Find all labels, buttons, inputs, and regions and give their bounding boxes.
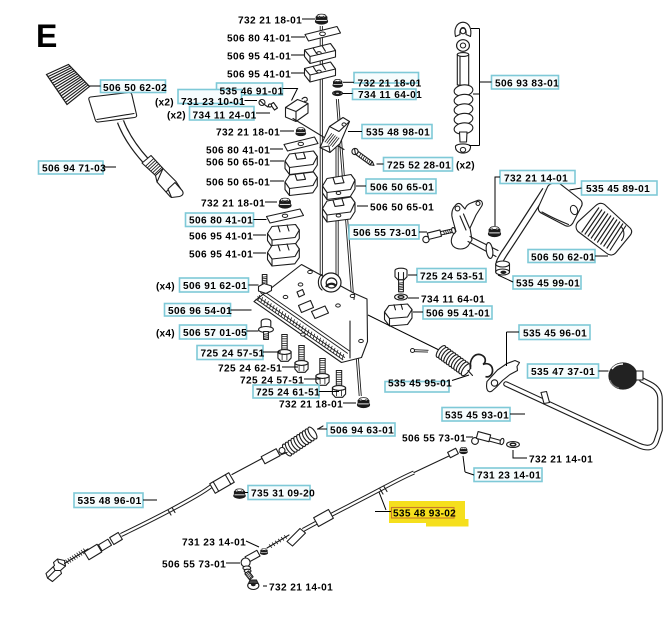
svg-text:506 50 65-01: 506 50 65-01 [206, 178, 270, 189]
svg-text:535 46 91-01: 535 46 91-01 [220, 87, 284, 98]
svg-text:725 24 57-51: 725 24 57-51 [201, 349, 265, 360]
svg-text:(x2): (x2) [167, 111, 186, 122]
svg-text:506 91 62-01: 506 91 62-01 [183, 281, 247, 292]
svg-text:506 80 41-01: 506 80 41-01 [227, 34, 291, 45]
svg-text:734 11 24-01: 734 11 24-01 [193, 111, 257, 122]
svg-text:506 55 73-01: 506 55 73-01 [402, 434, 466, 445]
svg-text:725 24 57-51: 725 24 57-51 [240, 376, 304, 387]
svg-text:506 50 65-01: 506 50 65-01 [370, 203, 434, 214]
svg-text:535 48 96-01: 535 48 96-01 [78, 496, 142, 507]
svg-text:734 11 64-01: 734 11 64-01 [421, 295, 485, 306]
svg-text:506 95 41-01: 506 95 41-01 [426, 309, 490, 320]
svg-text:506 57 01-05: 506 57 01-05 [183, 328, 247, 339]
svg-text:535 47 37-01: 535 47 37-01 [531, 367, 595, 378]
svg-text:506 80 41-01: 506 80 41-01 [189, 216, 253, 227]
svg-text:732 21 18-01: 732 21 18-01 [238, 16, 302, 27]
svg-text:535 45 99-01: 535 45 99-01 [516, 279, 580, 290]
svg-text:725 24 61-51: 725 24 61-51 [256, 388, 320, 399]
svg-text:725 24 62-51: 725 24 62-51 [218, 364, 282, 375]
svg-text:506 55 73-01: 506 55 73-01 [162, 560, 226, 571]
svg-text:735 31 09-20: 735 31 09-20 [251, 489, 315, 500]
svg-text:732 21 14-01: 732 21 14-01 [504, 174, 568, 185]
svg-text:(x2): (x2) [155, 98, 174, 109]
svg-text:732 21 18-01: 732 21 18-01 [279, 400, 343, 411]
svg-text:732 21 18-01: 732 21 18-01 [358, 79, 422, 90]
svg-text:506 93 83-01: 506 93 83-01 [495, 79, 559, 90]
svg-text:(x4): (x4) [156, 282, 175, 293]
svg-text:732 21 14-01: 732 21 14-01 [269, 583, 333, 594]
svg-text:506 94 71-03: 506 94 71-03 [42, 164, 106, 175]
svg-text:506 50 65-01: 506 50 65-01 [370, 183, 434, 194]
svg-text:506 80 41-01: 506 80 41-01 [206, 146, 270, 157]
svg-text:535 48 93-02: 535 48 93-02 [393, 509, 456, 520]
svg-text:506 95 41-01: 506 95 41-01 [189, 232, 253, 243]
svg-text:725 24 53-51: 725 24 53-51 [420, 272, 484, 283]
svg-text:506 50 62-02: 506 50 62-02 [103, 83, 167, 94]
svg-text:E: E [36, 18, 57, 54]
svg-text:535 45 93-01: 535 45 93-01 [445, 411, 509, 422]
svg-text:(x2): (x2) [456, 161, 475, 172]
svg-text:734 11 64-01: 734 11 64-01 [358, 90, 422, 101]
svg-text:732 21 18-01: 732 21 18-01 [201, 199, 265, 210]
svg-text:535 45 89-01: 535 45 89-01 [586, 184, 650, 195]
svg-text:731 23 14-01: 731 23 14-01 [477, 471, 541, 482]
svg-text:506 95 41-01: 506 95 41-01 [227, 52, 291, 63]
svg-text:731 23 10-01: 731 23 10-01 [181, 97, 245, 108]
svg-text:506 95 41-01: 506 95 41-01 [189, 250, 253, 261]
svg-text:506 95 41-01: 506 95 41-01 [227, 70, 291, 81]
svg-text:535 45 95-01: 535 45 95-01 [388, 379, 452, 390]
svg-text:506 50 62-01: 506 50 62-01 [531, 253, 595, 264]
svg-text:506 55 73-01: 506 55 73-01 [353, 228, 417, 239]
svg-text:732 21 14-01: 732 21 14-01 [529, 455, 593, 466]
svg-text:725 52 28-01: 725 52 28-01 [387, 161, 451, 172]
svg-text:732 21 18-01: 732 21 18-01 [216, 128, 280, 139]
svg-text:(x4): (x4) [156, 329, 175, 340]
svg-text:535 45 96-01: 535 45 96-01 [523, 329, 587, 340]
svg-text:506 50 65-01: 506 50 65-01 [206, 158, 270, 169]
svg-text:506 96 54-01: 506 96 54-01 [168, 306, 232, 317]
svg-text:535 48 98-01: 535 48 98-01 [366, 128, 430, 139]
svg-text:731 23 14-01: 731 23 14-01 [182, 538, 246, 549]
svg-text:506 94 63-01: 506 94 63-01 [330, 426, 394, 437]
